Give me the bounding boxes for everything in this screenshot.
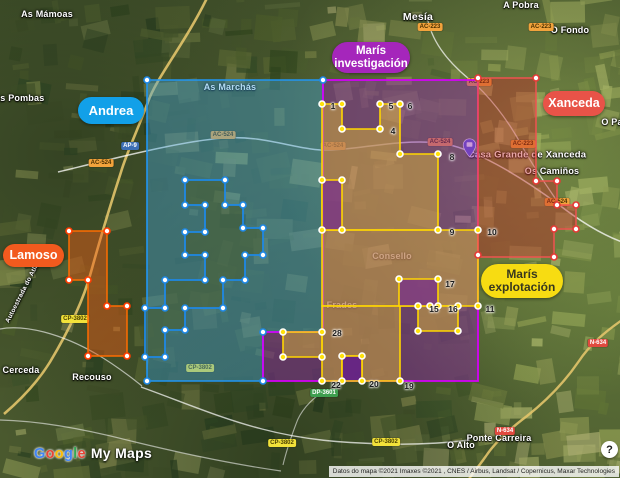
feature-label-text: Marís: [356, 45, 386, 58]
google-logo-letter: o: [46, 446, 55, 462]
google-my-maps-logo: GoogleMy Maps: [34, 445, 152, 462]
help-button[interactable]: ?: [601, 441, 618, 458]
google-logo-letter: o: [55, 446, 64, 462]
google-logo-letter: e: [77, 446, 85, 462]
feature-label-lamoso[interactable]: Lamoso: [3, 244, 64, 267]
feature-label-maris-investigacion[interactable]: Marísinvestigación: [332, 42, 410, 73]
google-logo-letter: g: [64, 446, 73, 462]
feature-label-text: Xanceda: [548, 97, 599, 110]
feature-label-text: explotación: [489, 281, 556, 294]
map-canvas[interactable]: As MámoasAs PombasMesíaA PobraO FondoAs …: [0, 0, 620, 478]
feature-label-xanceda[interactable]: Xanceda: [543, 91, 605, 116]
google-logo-letter: G: [34, 446, 46, 462]
my-maps-wordmark: My Maps: [91, 445, 152, 461]
feature-label-text: investigación: [334, 58, 408, 71]
feature-labels-layer: AndreaMarísinvestigaciónXancedaLamosoMar…: [0, 0, 620, 478]
feature-label-maris-explotacion[interactable]: Marísexplotación: [481, 264, 563, 298]
feature-label-text: Lamoso: [10, 249, 58, 262]
feature-label-andrea[interactable]: Andrea: [78, 97, 144, 124]
map-attribution: Datos do mapa ©2021 Imaxes ©2021 , CNES …: [329, 466, 619, 477]
feature-label-text: Andrea: [89, 104, 134, 117]
